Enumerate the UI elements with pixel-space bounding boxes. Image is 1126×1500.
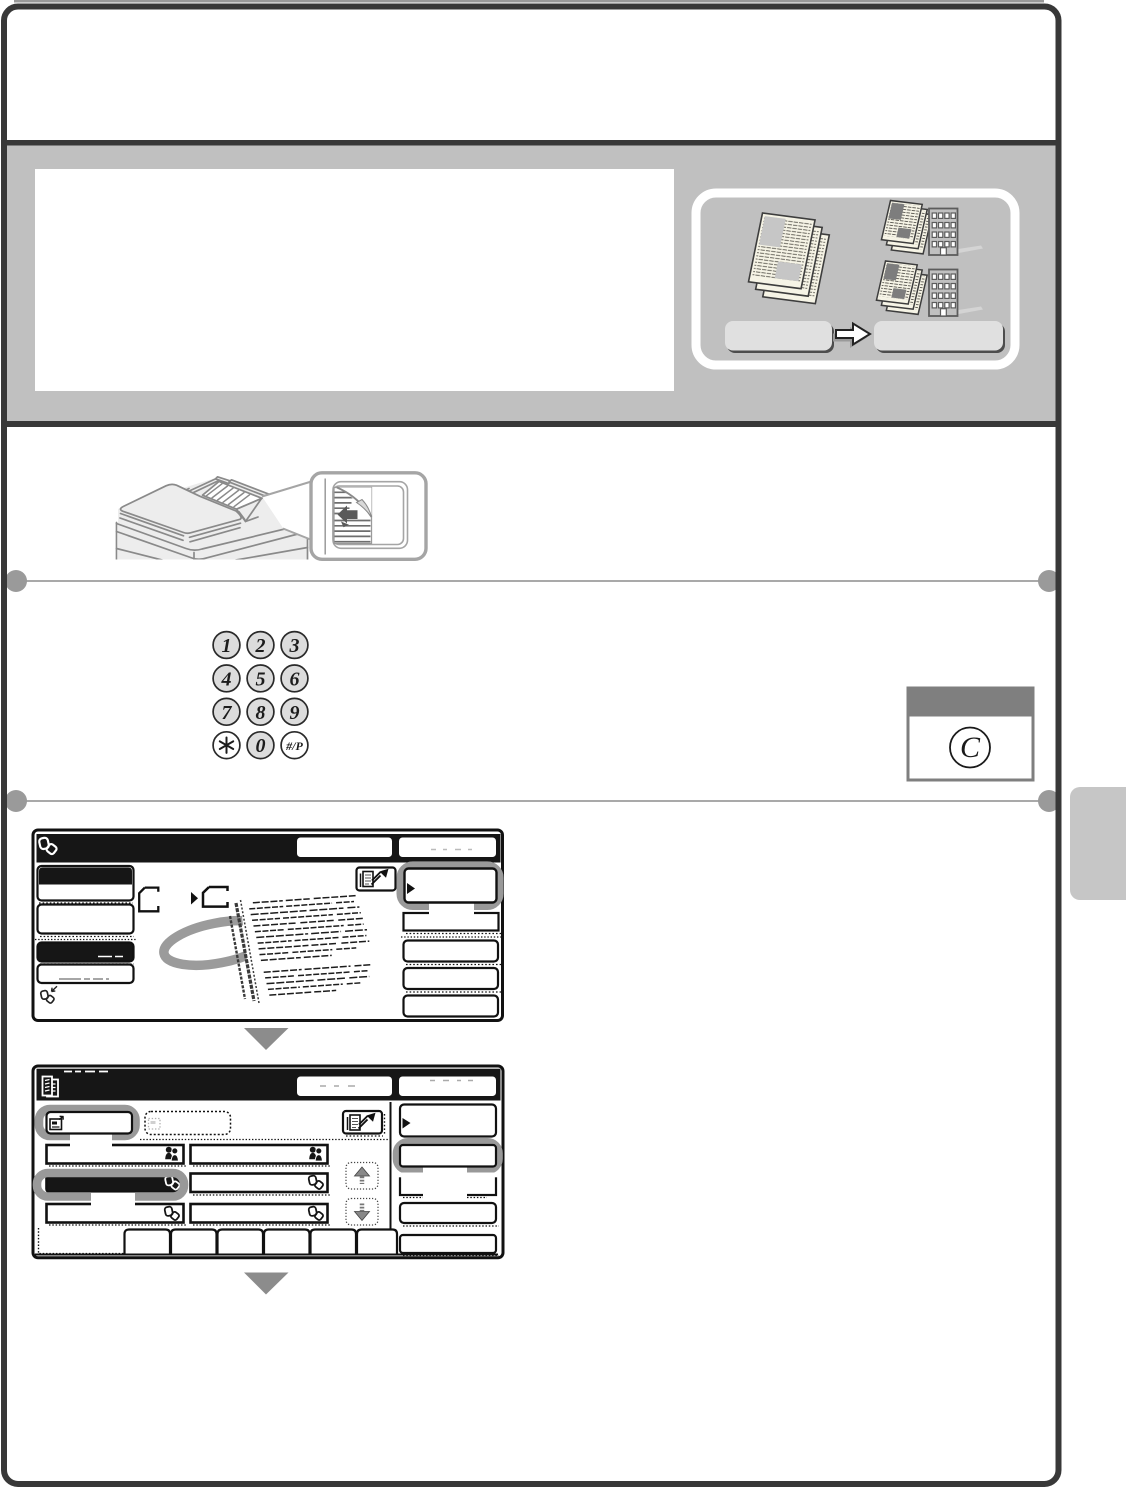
svg-text:2: 2: [255, 635, 266, 657]
svg-text:9: 9: [290, 702, 300, 724]
svg-text:7: 7: [222, 702, 233, 724]
svg-text:5: 5: [256, 668, 266, 690]
svg-text:1: 1: [222, 635, 232, 657]
svg-text:6: 6: [290, 668, 300, 690]
svg-text:4: 4: [221, 668, 232, 690]
svg-text:3: 3: [289, 635, 300, 657]
svg-text:0: 0: [256, 735, 266, 757]
svg-text:8: 8: [256, 702, 266, 724]
svg-text:C: C: [960, 731, 981, 764]
svg-text:#/P: #/P: [285, 739, 303, 753]
